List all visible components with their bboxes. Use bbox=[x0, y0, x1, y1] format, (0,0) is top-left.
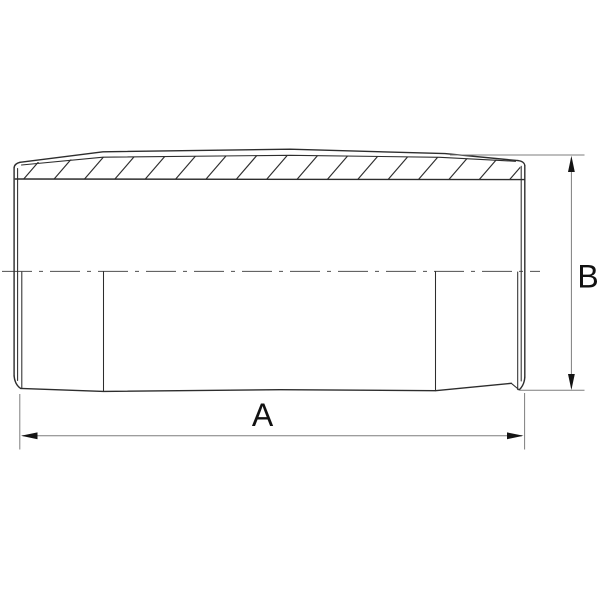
right-top-chamfer bbox=[518, 161, 525, 166]
drawing-canvas: A B bbox=[0, 0, 600, 600]
dimension-a: A bbox=[20, 393, 525, 450]
arrow-down-icon bbox=[568, 374, 575, 390]
right-bottom-chamfer bbox=[519, 377, 525, 390]
arrow-up-icon bbox=[568, 156, 575, 172]
arrow-right-icon bbox=[507, 432, 524, 439]
pipe-nipple-technical-drawing: A B bbox=[0, 0, 600, 600]
dim-label-b: B bbox=[577, 259, 598, 295]
bottom-silhouette-line bbox=[21, 383, 512, 391]
arrow-left-icon bbox=[21, 432, 38, 439]
dim-label-a: A bbox=[252, 397, 274, 433]
thread-hatch-lines bbox=[22, 152, 533, 181]
nipple-body-outline bbox=[14, 149, 525, 391]
thread-band-bottom-line bbox=[15, 179, 524, 180]
thread-root-line bbox=[22, 155, 516, 165]
left-top-chamfer bbox=[14, 162, 20, 167]
